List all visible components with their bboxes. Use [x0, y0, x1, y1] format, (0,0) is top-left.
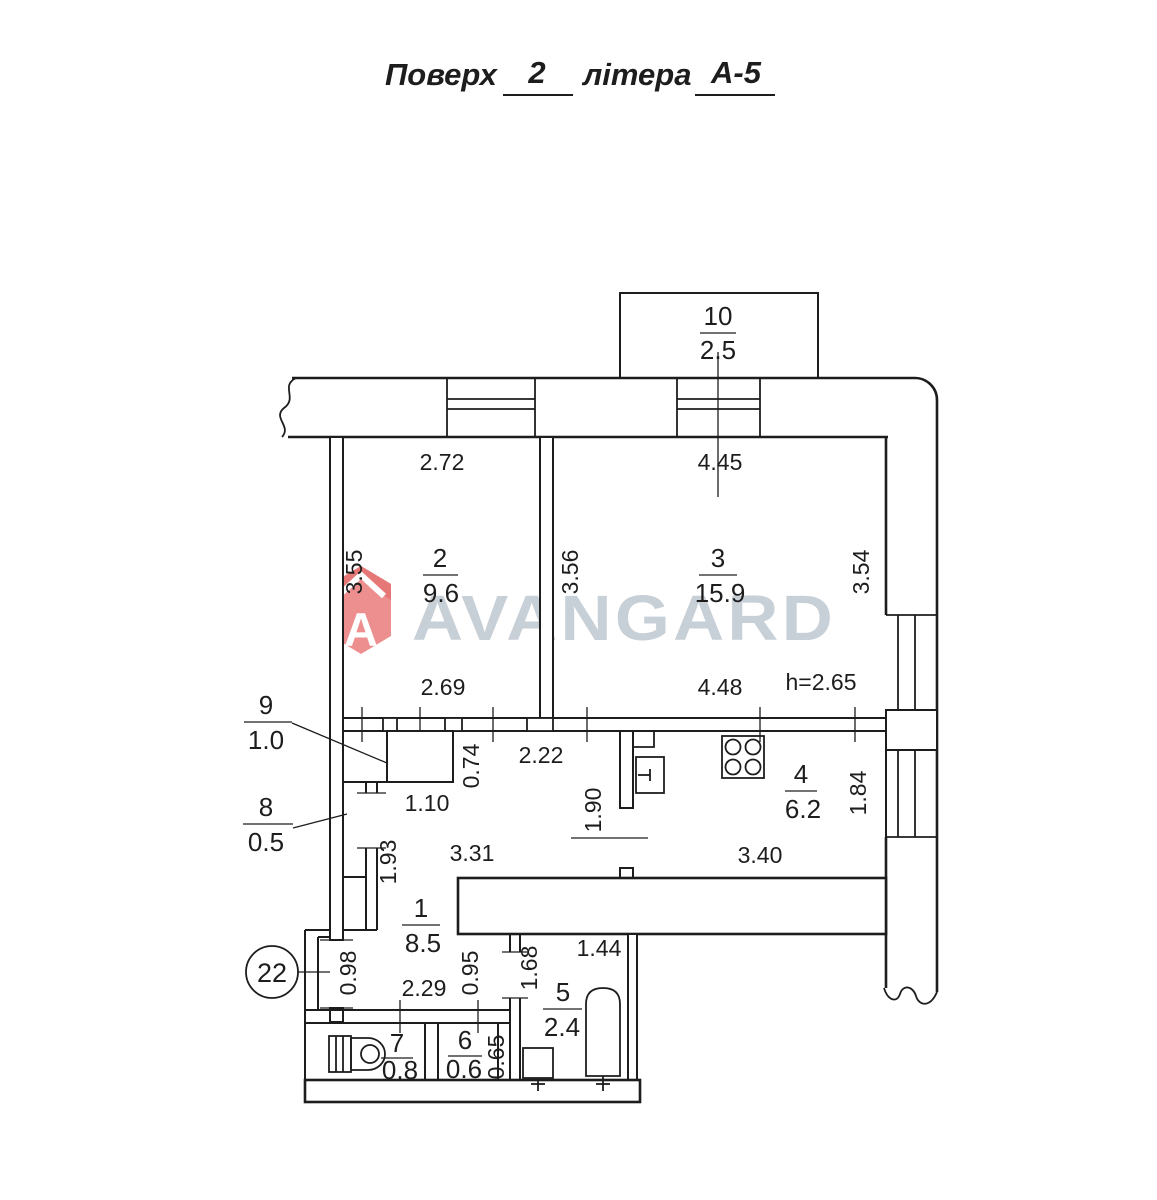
dim-hall-width: 3.31 [450, 840, 495, 866]
dim-bath-top: 1.44 [577, 935, 622, 961]
room7-label: 7 0.8 [381, 1028, 418, 1085]
thick-wall-band [458, 878, 886, 934]
dim-room2-top: 2.72 [420, 449, 465, 475]
room9-number: 9 [259, 690, 273, 720]
dim-room3-right: 3.54 [848, 549, 874, 594]
stove-icon [722, 736, 764, 778]
room9-area: 1.0 [248, 725, 284, 755]
dim-wc-right: 0.65 [483, 1035, 509, 1080]
room5-area: 2.4 [544, 1012, 580, 1042]
ceiling-height-note: h=2.65 [786, 669, 857, 695]
room6-number: 6 [458, 1025, 472, 1055]
left-wall [330, 437, 343, 940]
watermark-brand-text: AVANGARD [412, 582, 836, 654]
dim-entry-height: 0.98 [335, 951, 361, 996]
room7-area: 0.8 [382, 1055, 418, 1085]
room10-number: 10 [704, 301, 733, 331]
dim-bath-left: 1.68 [516, 946, 542, 991]
closet-room9 [387, 731, 453, 782]
dim-hall-top: 2.22 [519, 742, 564, 768]
dim-room3-top: 4.45 [698, 449, 743, 475]
room9-label: 9 1.0 [244, 690, 292, 755]
dim-closet-depth: 0.74 [458, 743, 484, 788]
dim-entry-width: 2.29 [402, 975, 447, 1001]
room1-label: 1 8.5 [402, 893, 441, 958]
dim-niche-height: 1.93 [375, 840, 401, 885]
wall-break-left-icon [280, 378, 296, 437]
room8-label: 8 0.5 [243, 792, 293, 857]
room2-number: 2 [433, 543, 447, 573]
avangard-logo-letter: A [344, 603, 378, 656]
floor-plan-drawing: Поверх 2 літера А-5 A AVANGARD [0, 0, 1157, 1200]
room1-area: 8.5 [405, 928, 441, 958]
room5-number: 5 [556, 977, 570, 1007]
bathtub-icon [586, 988, 620, 1091]
door-jamb [445, 718, 462, 731]
dim-kitchen-bottom: 3.40 [738, 842, 783, 868]
title-letter-value: А-5 [710, 55, 762, 90]
door-jamb [383, 718, 397, 731]
bath-right-wall [628, 934, 637, 1080]
room7-number: 7 [390, 1028, 404, 1058]
kitchen-wall-upper [620, 731, 633, 808]
apartment-number: 22 [257, 958, 287, 988]
dim-closet-width: 1.10 [405, 790, 450, 816]
room4-number: 4 [794, 759, 808, 789]
dim-kitchen-right: 1.84 [845, 770, 871, 815]
room2-label: 2 9.6 [423, 543, 459, 608]
kitchen-sink-icon [633, 731, 664, 793]
dim-room2-bottom: 2.69 [421, 674, 466, 700]
room2-area: 9.6 [423, 578, 459, 608]
dim-room3-left: 3.56 [557, 550, 583, 595]
room6-area: 0.6 [446, 1054, 482, 1084]
room2-room3-wall [540, 437, 553, 718]
room10-area: 2.5 [700, 335, 736, 365]
watermark: A AVANGARD [331, 566, 836, 656]
room3-number: 3 [711, 543, 725, 573]
room10-label: 10 2.5 [700, 301, 736, 365]
room3-area: 15.9 [695, 578, 746, 608]
room3-label: 3 15.9 [695, 543, 746, 608]
room4-area: 6.2 [785, 794, 821, 824]
room1-number: 1 [414, 893, 428, 923]
room8-area: 0.5 [248, 827, 284, 857]
title-word-floor: Поверх [385, 57, 499, 92]
wall-break-right-icon [884, 987, 937, 1003]
room8-number: 8 [259, 792, 273, 822]
toilet-icon [329, 1036, 385, 1072]
plan-title: Поверх 2 літера А-5 [385, 55, 775, 95]
room6-label: 6 0.6 [446, 1025, 482, 1084]
dim-passage-height: 0.95 [457, 951, 483, 996]
room4-label: 4 6.2 [785, 759, 821, 824]
floor-plan-page: Поверх 2 літера А-5 A AVANGARD [0, 0, 1157, 1200]
room5-label: 5 2.4 [543, 977, 582, 1042]
title-floor-value: 2 [527, 55, 545, 90]
wc-divider-wall [425, 1023, 438, 1080]
door-jamb [527, 718, 553, 731]
title-word-letter: літера [581, 57, 691, 92]
dim-room3-bottom: 4.48 [698, 674, 743, 700]
dim-room2-left: 3.55 [341, 550, 367, 595]
kitchen-wall-lower [620, 868, 633, 878]
wall-pier-right [886, 710, 937, 750]
dim-kitchen-door: 1.90 [580, 788, 606, 833]
